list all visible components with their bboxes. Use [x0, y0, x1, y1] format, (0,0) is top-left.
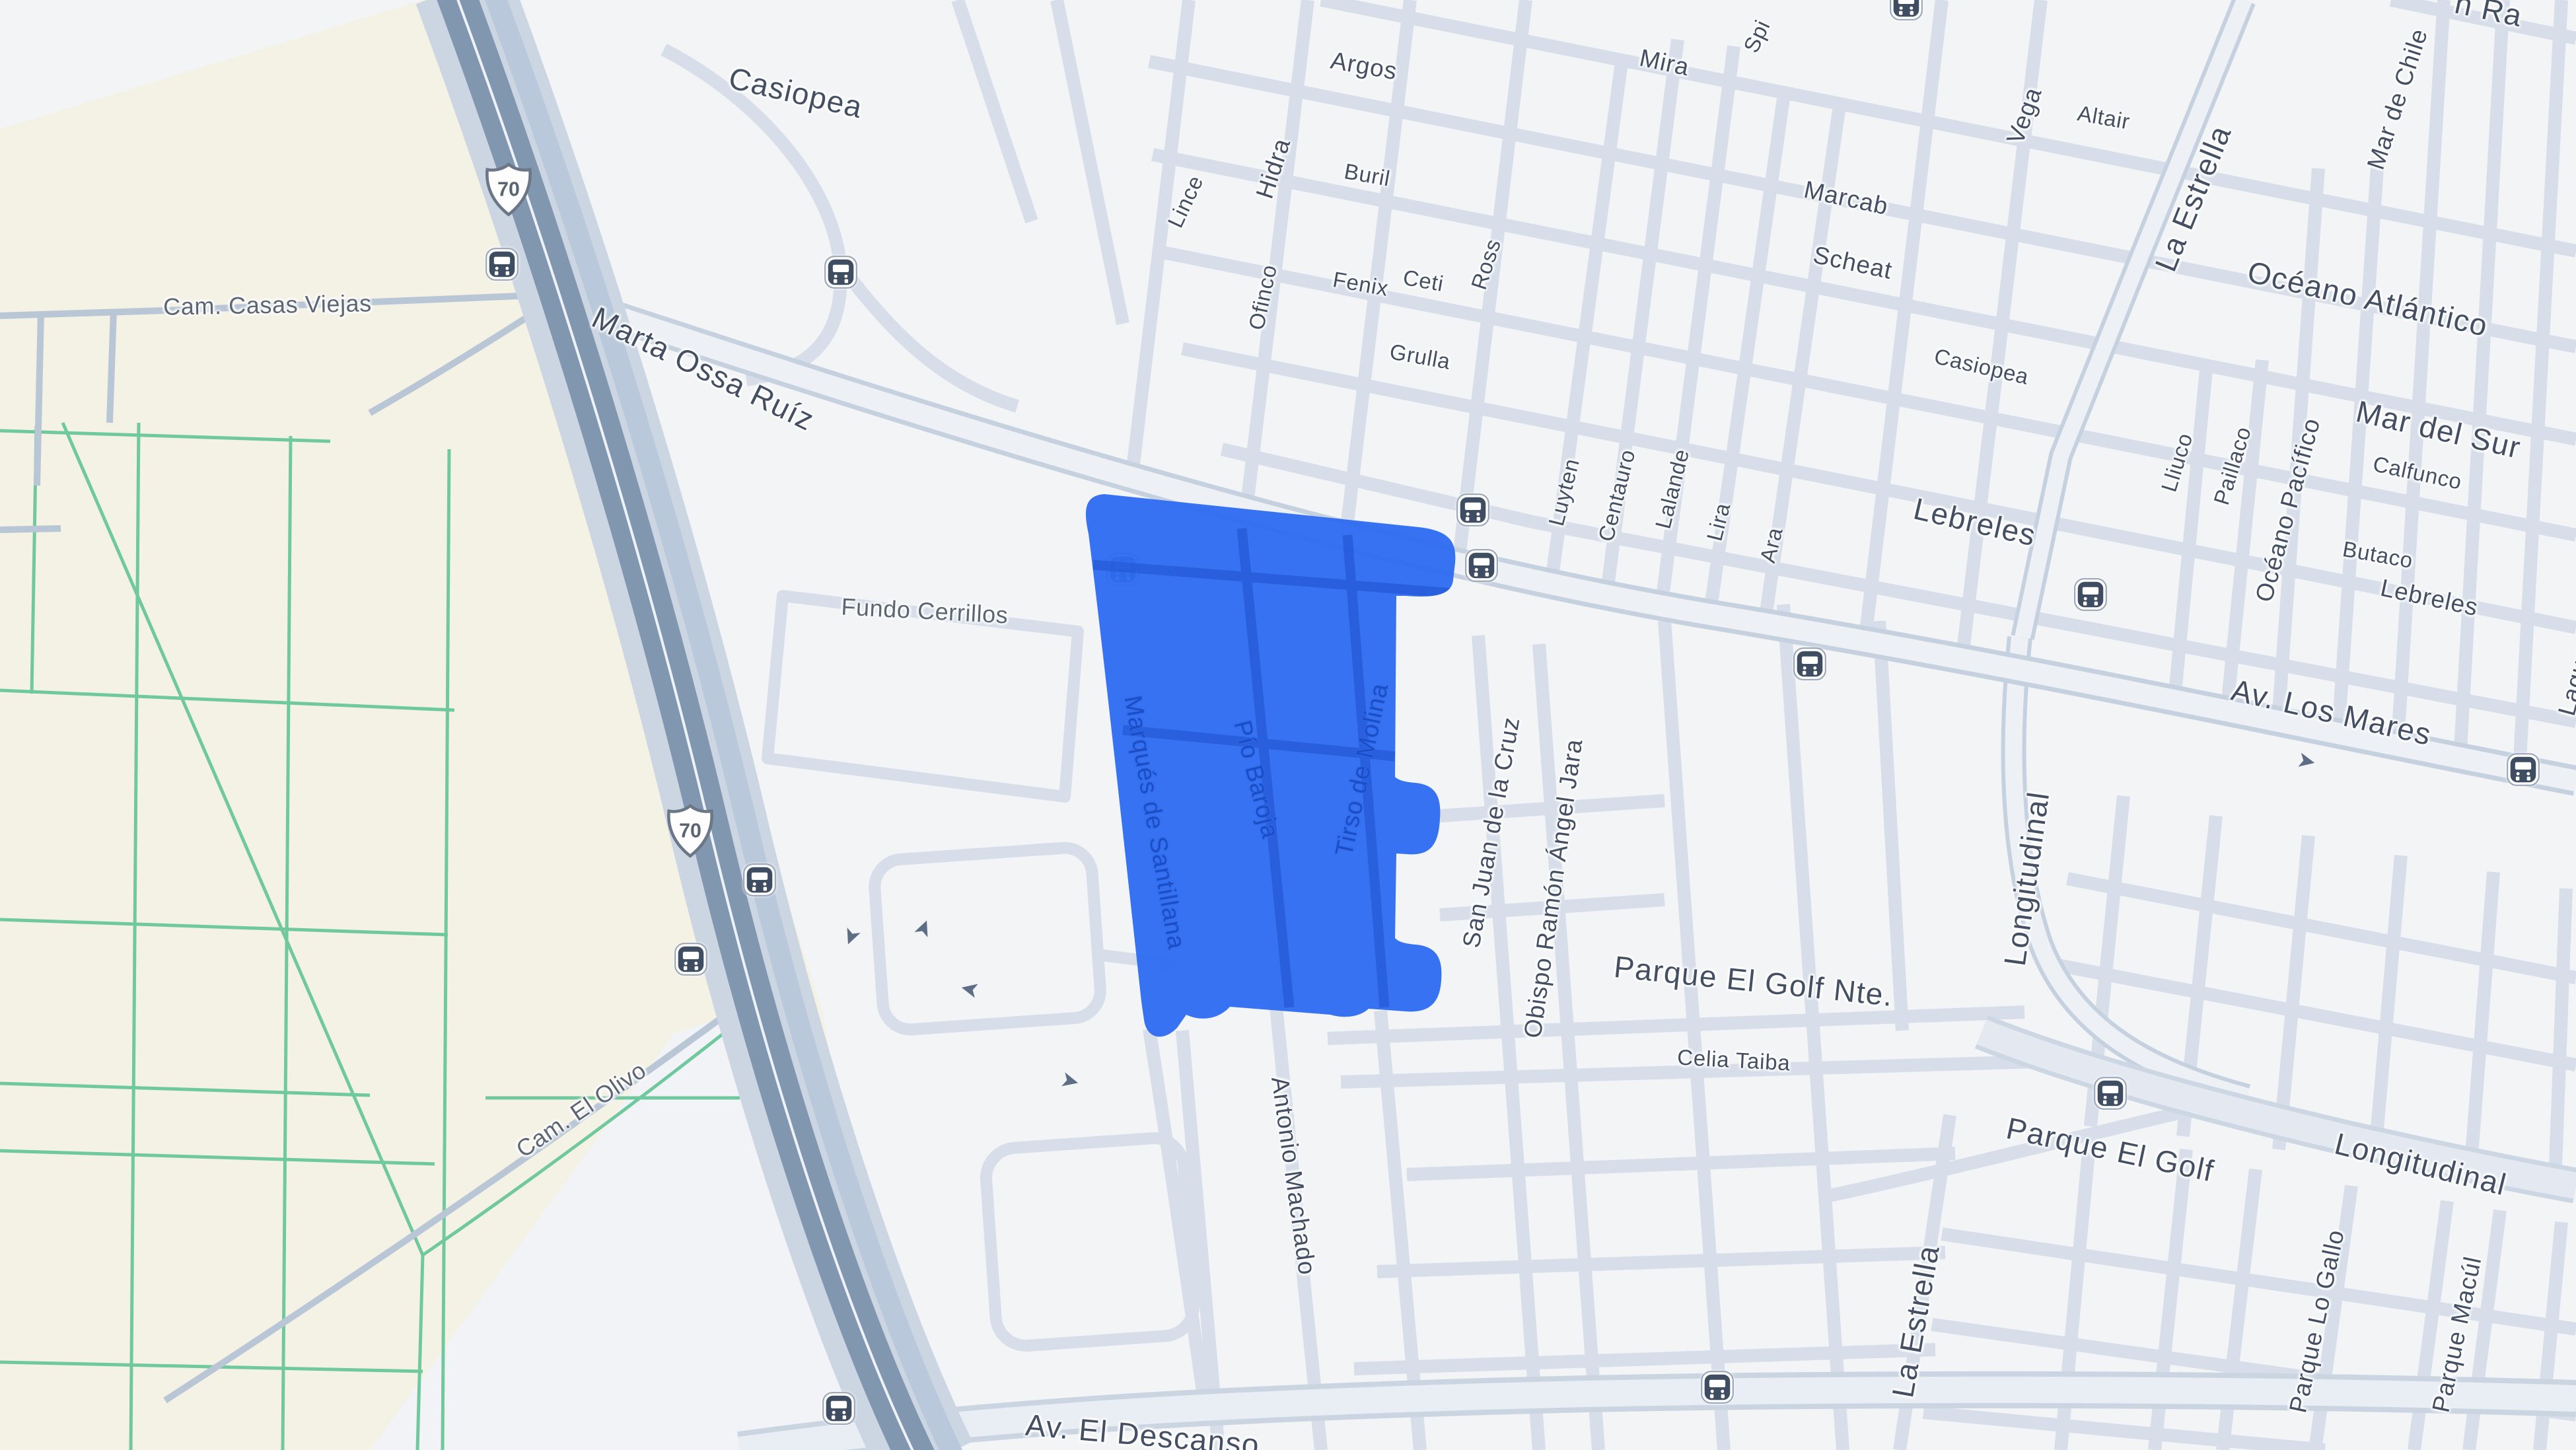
bus-stop-icon[interactable] — [1889, 0, 1923, 21]
bus-stop-icon[interactable] — [1464, 548, 1499, 583]
map-canvas[interactable]: 70 70 ➤ ➤ ➤ ➤ ➤ Casiopea Cam. Casas Viej… — [0, 0, 2576, 1450]
bus-stop-icon[interactable] — [1700, 1370, 1735, 1404]
bus-stop-icon[interactable] — [485, 247, 519, 281]
bus-stop-icon[interactable] — [674, 942, 708, 976]
svg-text:70: 70 — [497, 178, 520, 200]
us-route-shield-icon: 70 — [665, 803, 715, 859]
bus-stop-icon[interactable] — [2093, 1076, 2128, 1110]
svg-text:70: 70 — [679, 819, 701, 842]
bus-stop-icon[interactable] — [742, 863, 777, 897]
bus-stop-icon[interactable] — [822, 1391, 856, 1426]
locality-label-cam-casas-viejas: Cam. Casas Viejas — [163, 289, 372, 321]
bus-stop-icon[interactable] — [1456, 493, 1490, 527]
bus-stop-icon[interactable] — [2506, 752, 2540, 787]
bus-stop-icon[interactable] — [2073, 577, 2108, 612]
bus-stop-icon[interactable] — [824, 255, 858, 289]
bus-stop-icon[interactable] — [1793, 647, 1827, 681]
us-route-shield-icon: 70 — [483, 162, 534, 217]
